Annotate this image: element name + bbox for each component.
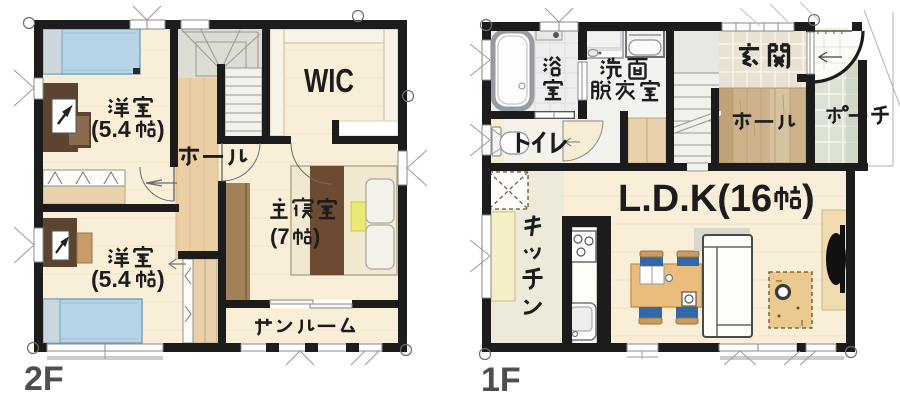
svg-text:2F: 2F: [24, 360, 64, 398]
svg-text:): ): [313, 224, 320, 249]
svg-text:): ): [802, 178, 815, 220]
svg-text:(5.4: (5.4: [91, 266, 131, 292]
svg-text:L.D.K(16: L.D.K(16: [618, 178, 772, 220]
svg-text:1F: 1F: [481, 361, 521, 399]
svg-text:(5.4: (5.4: [91, 116, 131, 142]
svg-text:): ): [157, 116, 165, 142]
svg-text:WIC: WIC: [304, 62, 354, 99]
svg-text:(7: (7: [270, 224, 290, 249]
svg-text:): ): [157, 266, 165, 292]
